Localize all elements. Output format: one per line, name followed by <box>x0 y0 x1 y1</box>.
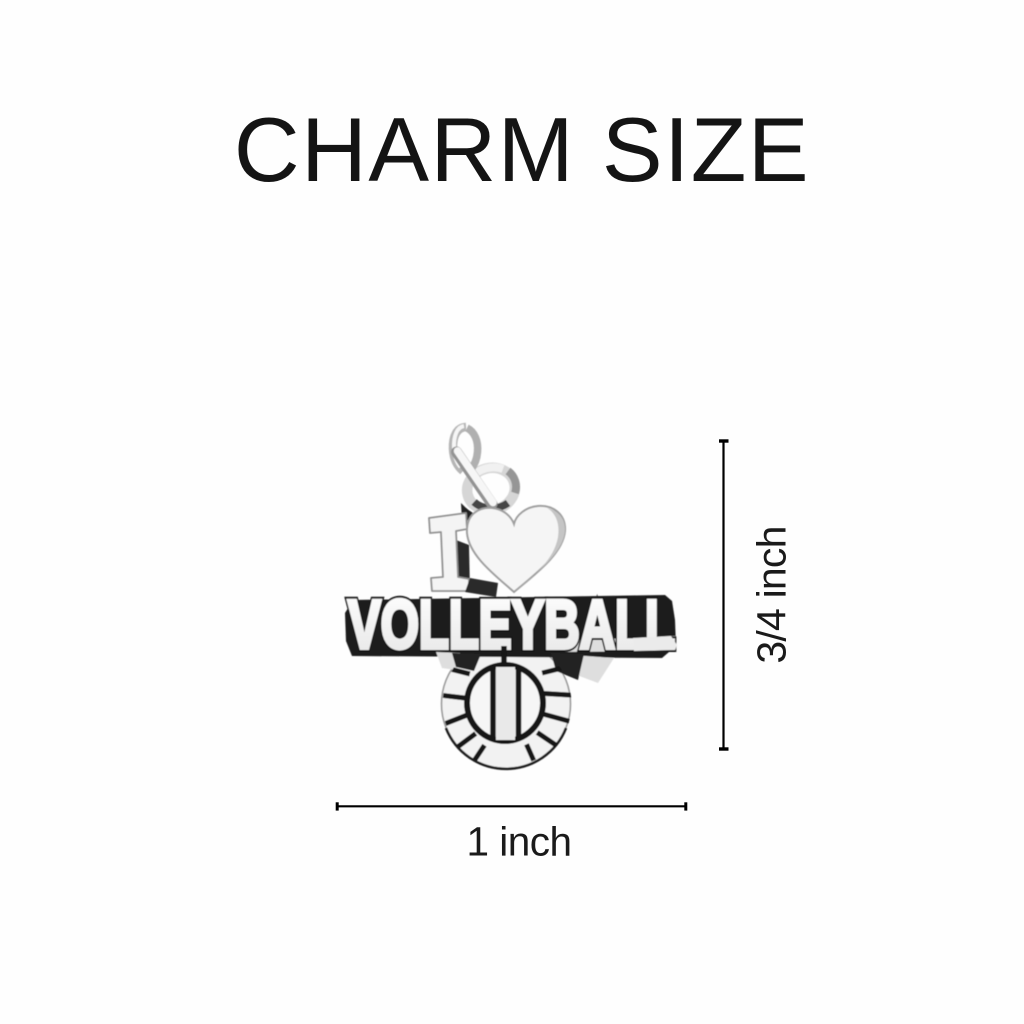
svg-text:VOLLEYBALL: VOLLEYBALL <box>348 586 675 663</box>
